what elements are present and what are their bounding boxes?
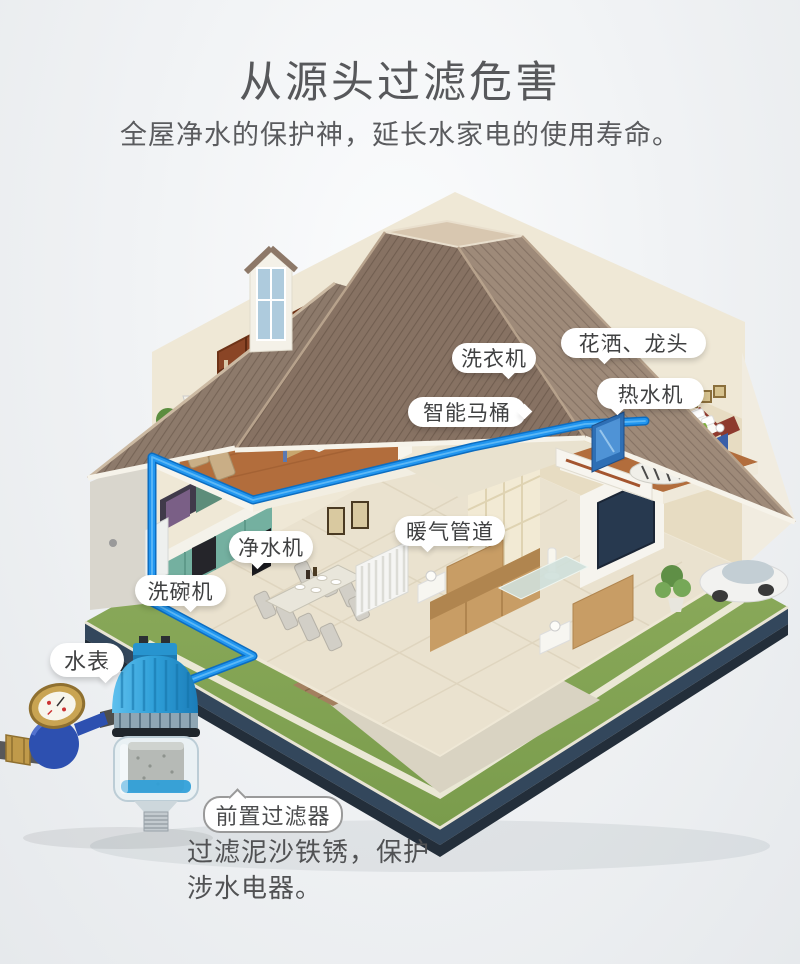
- callout-dishwasher: 洗碗机: [135, 575, 226, 606]
- callout-heating-pipes: 暖气管道: [395, 516, 505, 546]
- dormer: [246, 248, 296, 352]
- product-note-line1: 过滤泥沙铁锈，保护: [187, 834, 430, 870]
- callout-water-heater: 热水机: [597, 378, 704, 409]
- filter-oring: [112, 728, 200, 737]
- callout-shower-faucet: 花洒、龙头: [561, 328, 706, 358]
- callout-prefilter: 前置过滤器: [203, 796, 343, 833]
- callout-water-purifier: 净水机: [229, 531, 313, 563]
- filter-taper: [134, 801, 178, 812]
- wall-frame: [352, 502, 368, 528]
- house-cutaway-illustration: [0, 0, 800, 964]
- product-note: 过滤泥沙铁锈，保护 涉水电器。: [187, 834, 430, 906]
- product-note-line2: 涉水电器。: [187, 870, 430, 906]
- filter-blue-band: [121, 780, 191, 793]
- callout-washing-machine: 洗衣机: [452, 343, 536, 373]
- pipe-nut: [6, 735, 30, 765]
- gold-frame: [714, 386, 725, 397]
- callout-water-meter: 水表: [50, 643, 124, 677]
- product-shadow: [23, 827, 213, 849]
- promo-page: 从源头过滤危害 全屋净水的保护神，延长水家电的使用寿命。: [0, 0, 800, 964]
- callout-smart-toilet: 智能马桶: [408, 397, 526, 427]
- wall-frame: [328, 508, 344, 534]
- security-camera: [109, 539, 117, 547]
- filter-collar: [114, 713, 198, 728]
- water-meter-product: [0, 679, 132, 769]
